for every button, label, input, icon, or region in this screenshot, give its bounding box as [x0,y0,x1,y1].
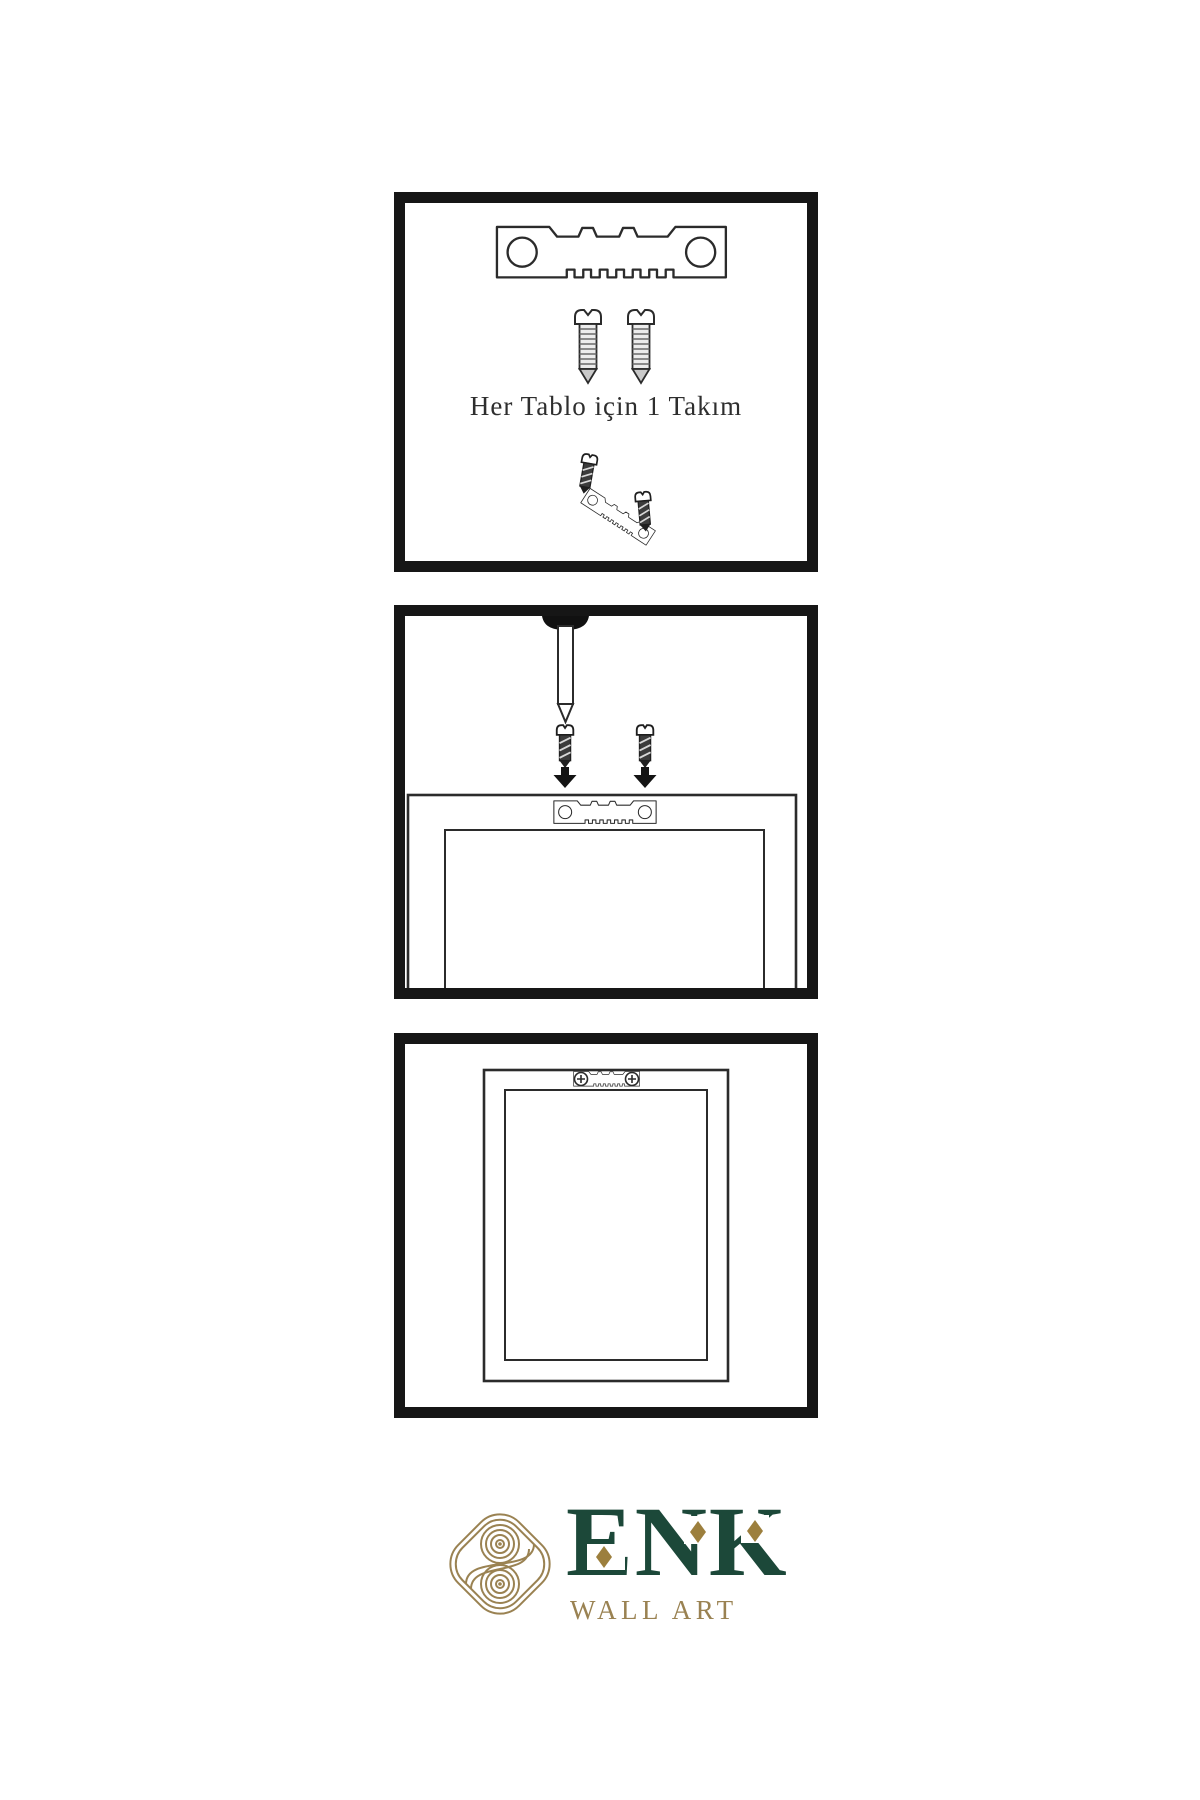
brand-logo: ENK WALL ART [440,1496,820,1646]
down-arrow-icon [554,767,577,788]
screw-icon [575,310,601,383]
hung-frame-illustration [405,1044,807,1407]
screw-icon [557,725,574,768]
instruction-sheet: Her Tablo için 1 Takım [0,0,1200,1800]
step-panel-2 [394,605,818,999]
mounting-illustration [405,616,807,988]
step1-caption: Her Tablo için 1 Takım [405,391,807,422]
down-arrow-icon [634,767,657,788]
screw-icon [637,725,654,768]
interlaced-knot-icon [440,1498,560,1630]
step-panel-3 [394,1033,818,1418]
frame-back-inner-edge [445,830,764,988]
sawtooth-hanger-icon [497,227,726,277]
frame-inner-edge [505,1090,707,1360]
screw-icon [628,310,654,383]
screw-head-icon [626,1073,639,1086]
step-panel-1: Her Tablo için 1 Takım [394,192,818,572]
brand-subtitle: WALL ART [570,1595,738,1626]
screw-head-icon [575,1073,588,1086]
hardware-kit-illustration [405,203,807,561]
wall-nail-icon [542,616,589,722]
screw-into-hanger-assembly-icon [576,453,655,545]
